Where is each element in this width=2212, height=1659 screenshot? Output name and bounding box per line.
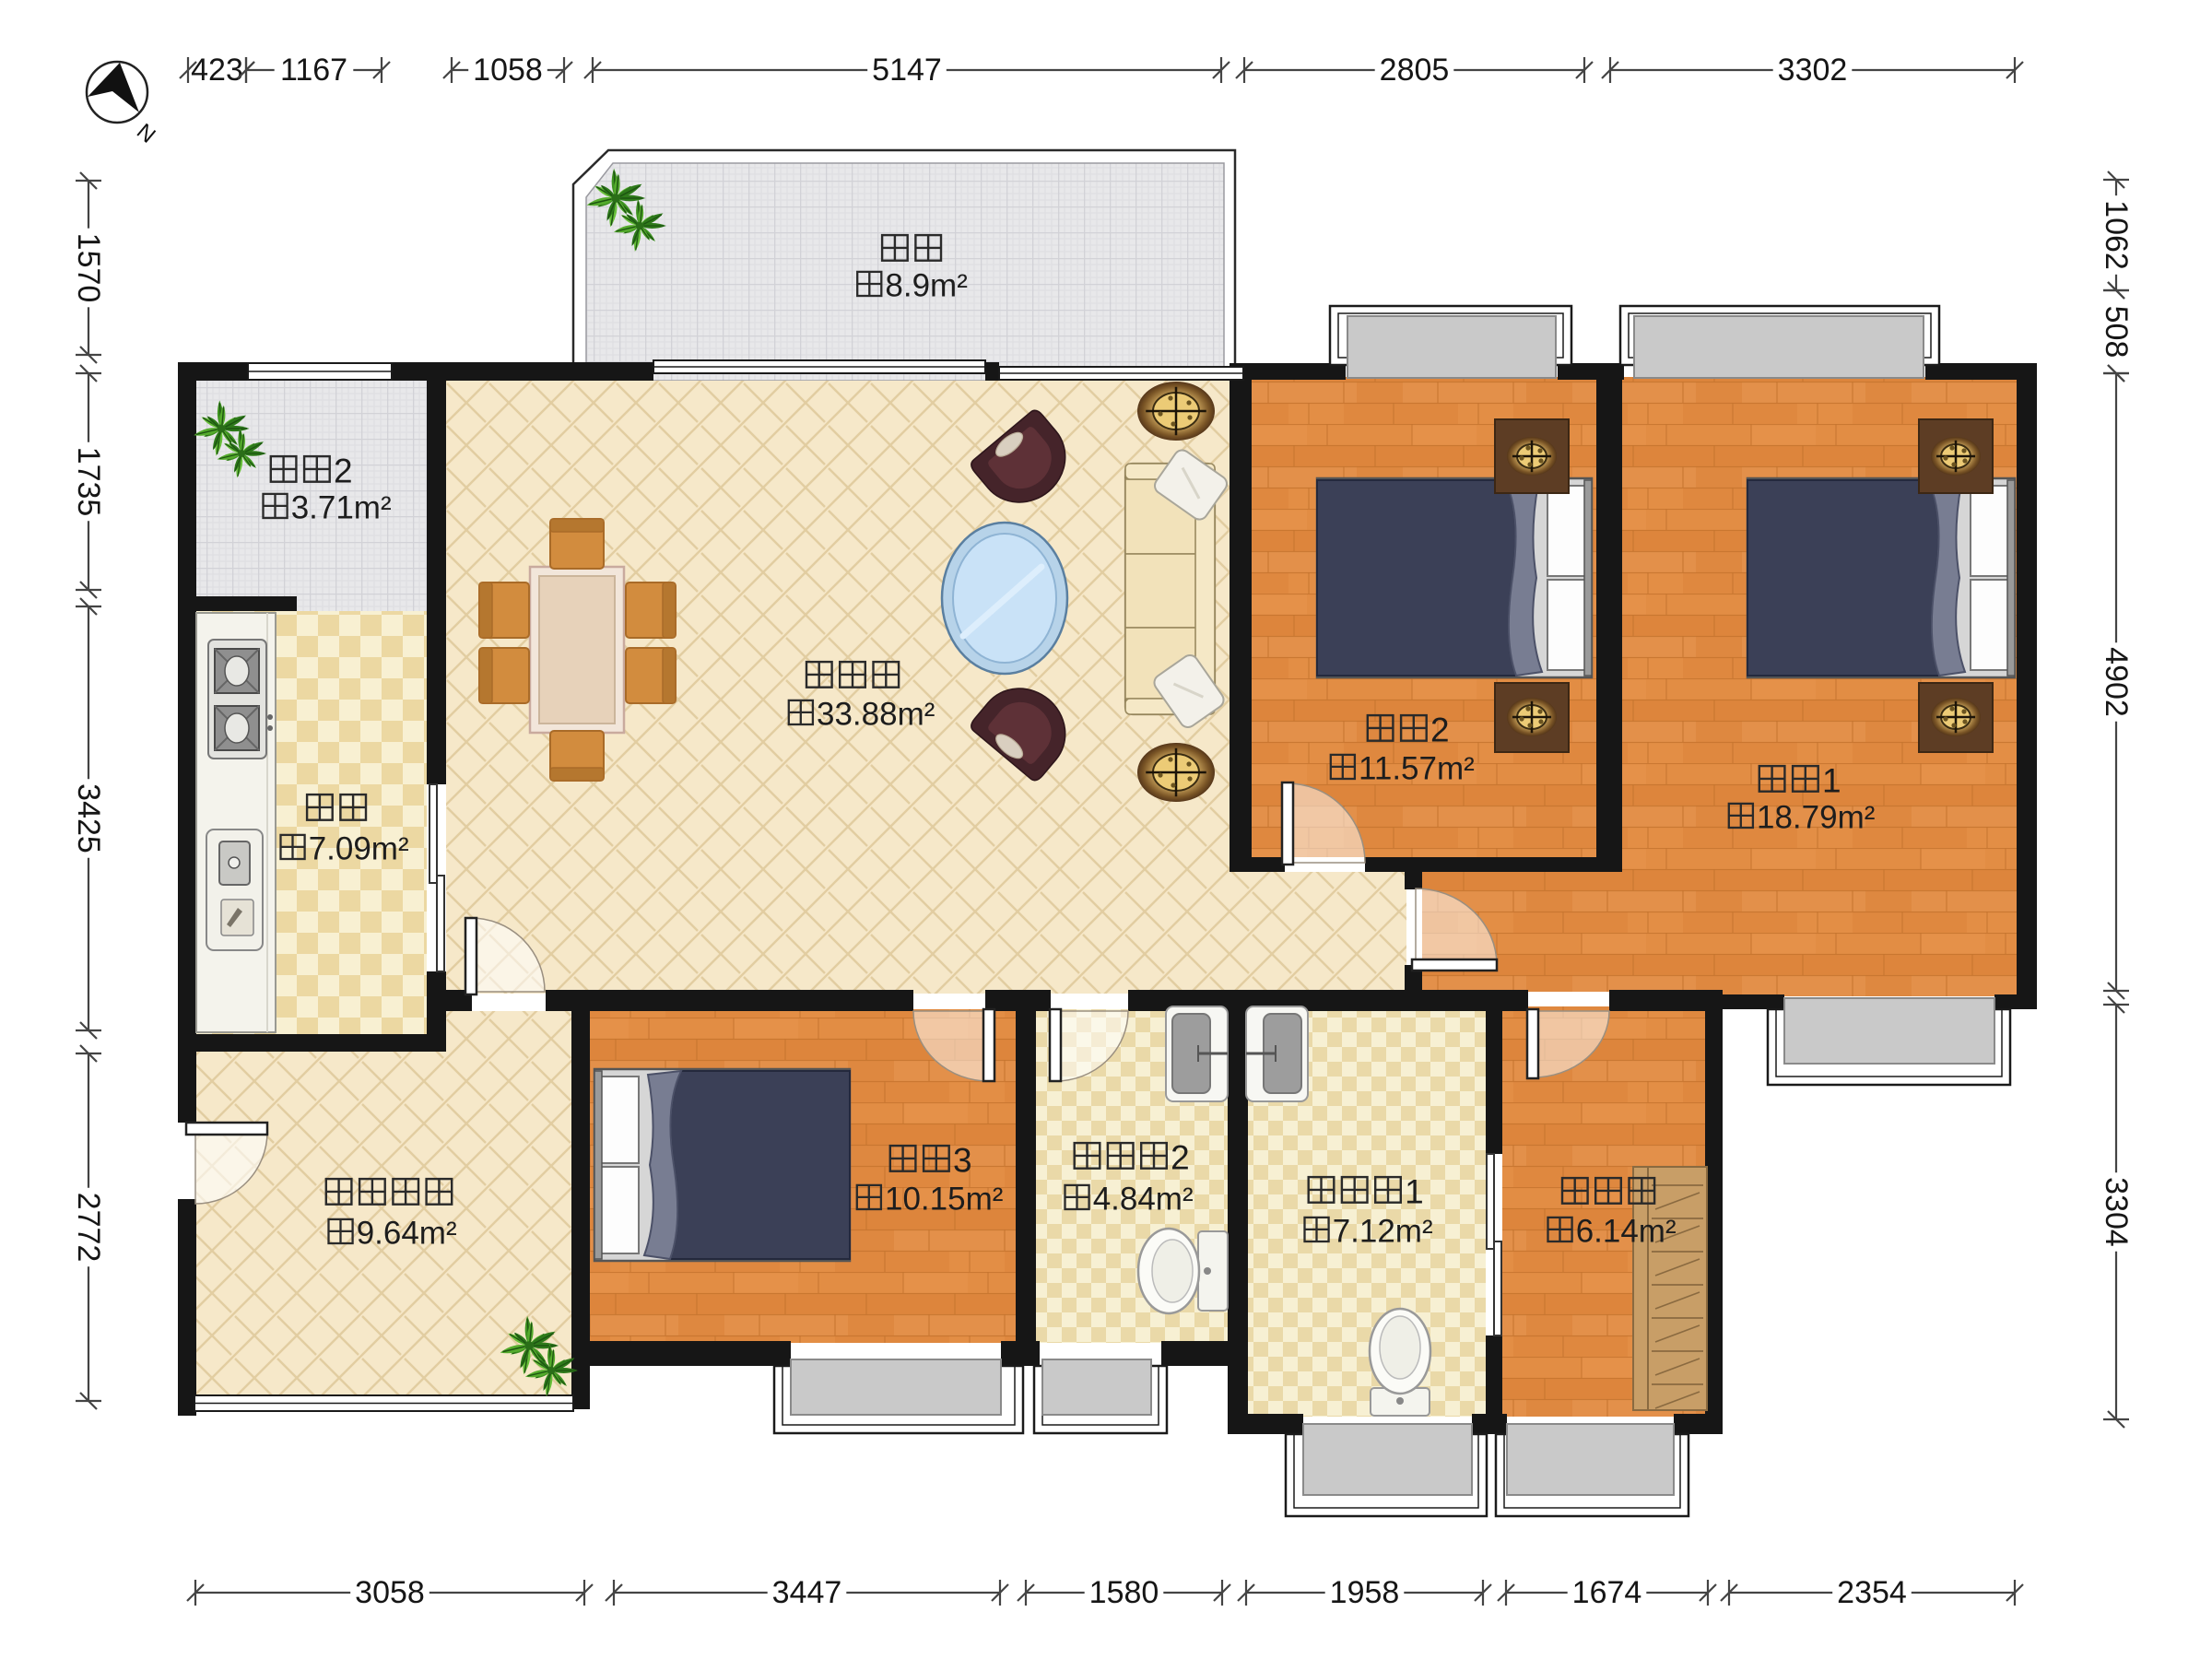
svg-text:1570: 1570 bbox=[71, 233, 106, 303]
svg-text:1674: 1674 bbox=[1572, 1575, 1642, 1610]
svg-text:5147: 5147 bbox=[872, 53, 942, 88]
svg-text:1735: 1735 bbox=[71, 447, 106, 517]
svg-text:2805: 2805 bbox=[1380, 53, 1450, 88]
svg-text:1: 1 bbox=[1405, 1172, 1424, 1210]
svg-text:7.12m²: 7.12m² bbox=[1333, 1214, 1433, 1250]
svg-text:2354: 2354 bbox=[1837, 1575, 1907, 1610]
svg-text:2: 2 bbox=[1171, 1138, 1190, 1176]
svg-text:3058: 3058 bbox=[355, 1575, 425, 1610]
svg-text:1958: 1958 bbox=[1330, 1575, 1400, 1610]
svg-text:508: 508 bbox=[2099, 306, 2134, 359]
svg-text:8.9m²: 8.9m² bbox=[885, 268, 967, 304]
svg-text:423: 423 bbox=[191, 53, 243, 88]
svg-text:9.64m²: 9.64m² bbox=[357, 1216, 457, 1252]
svg-text:1167: 1167 bbox=[280, 53, 347, 88]
svg-text:11.57m²: 11.57m² bbox=[1359, 751, 1475, 787]
svg-text:6.14m²: 6.14m² bbox=[1576, 1214, 1677, 1250]
svg-text:4.84m²: 4.84m² bbox=[1093, 1182, 1194, 1218]
svg-text:7.09m²: 7.09m² bbox=[309, 831, 409, 867]
svg-text:3.71m²: 3.71m² bbox=[291, 490, 392, 526]
svg-text:4902: 4902 bbox=[2099, 647, 2134, 717]
svg-text:33.88m²: 33.88m² bbox=[817, 697, 935, 733]
svg-text:1062: 1062 bbox=[2099, 200, 2134, 270]
svg-text:2: 2 bbox=[1430, 711, 1450, 748]
svg-text:3: 3 bbox=[953, 1141, 972, 1179]
svg-text:10.15m²: 10.15m² bbox=[885, 1182, 1003, 1218]
svg-text:1: 1 bbox=[1822, 761, 1841, 799]
svg-text:3425: 3425 bbox=[71, 783, 106, 853]
svg-text:2: 2 bbox=[334, 452, 353, 489]
svg-text:3302: 3302 bbox=[1778, 53, 1848, 88]
svg-text:1580: 1580 bbox=[1089, 1575, 1159, 1610]
svg-text:3304: 3304 bbox=[2099, 1177, 2134, 1247]
svg-text:1058: 1058 bbox=[473, 53, 543, 88]
svg-text:18.79m²: 18.79m² bbox=[1757, 800, 1875, 836]
svg-text:3447: 3447 bbox=[772, 1575, 842, 1610]
svg-text:2772: 2772 bbox=[71, 1193, 106, 1263]
